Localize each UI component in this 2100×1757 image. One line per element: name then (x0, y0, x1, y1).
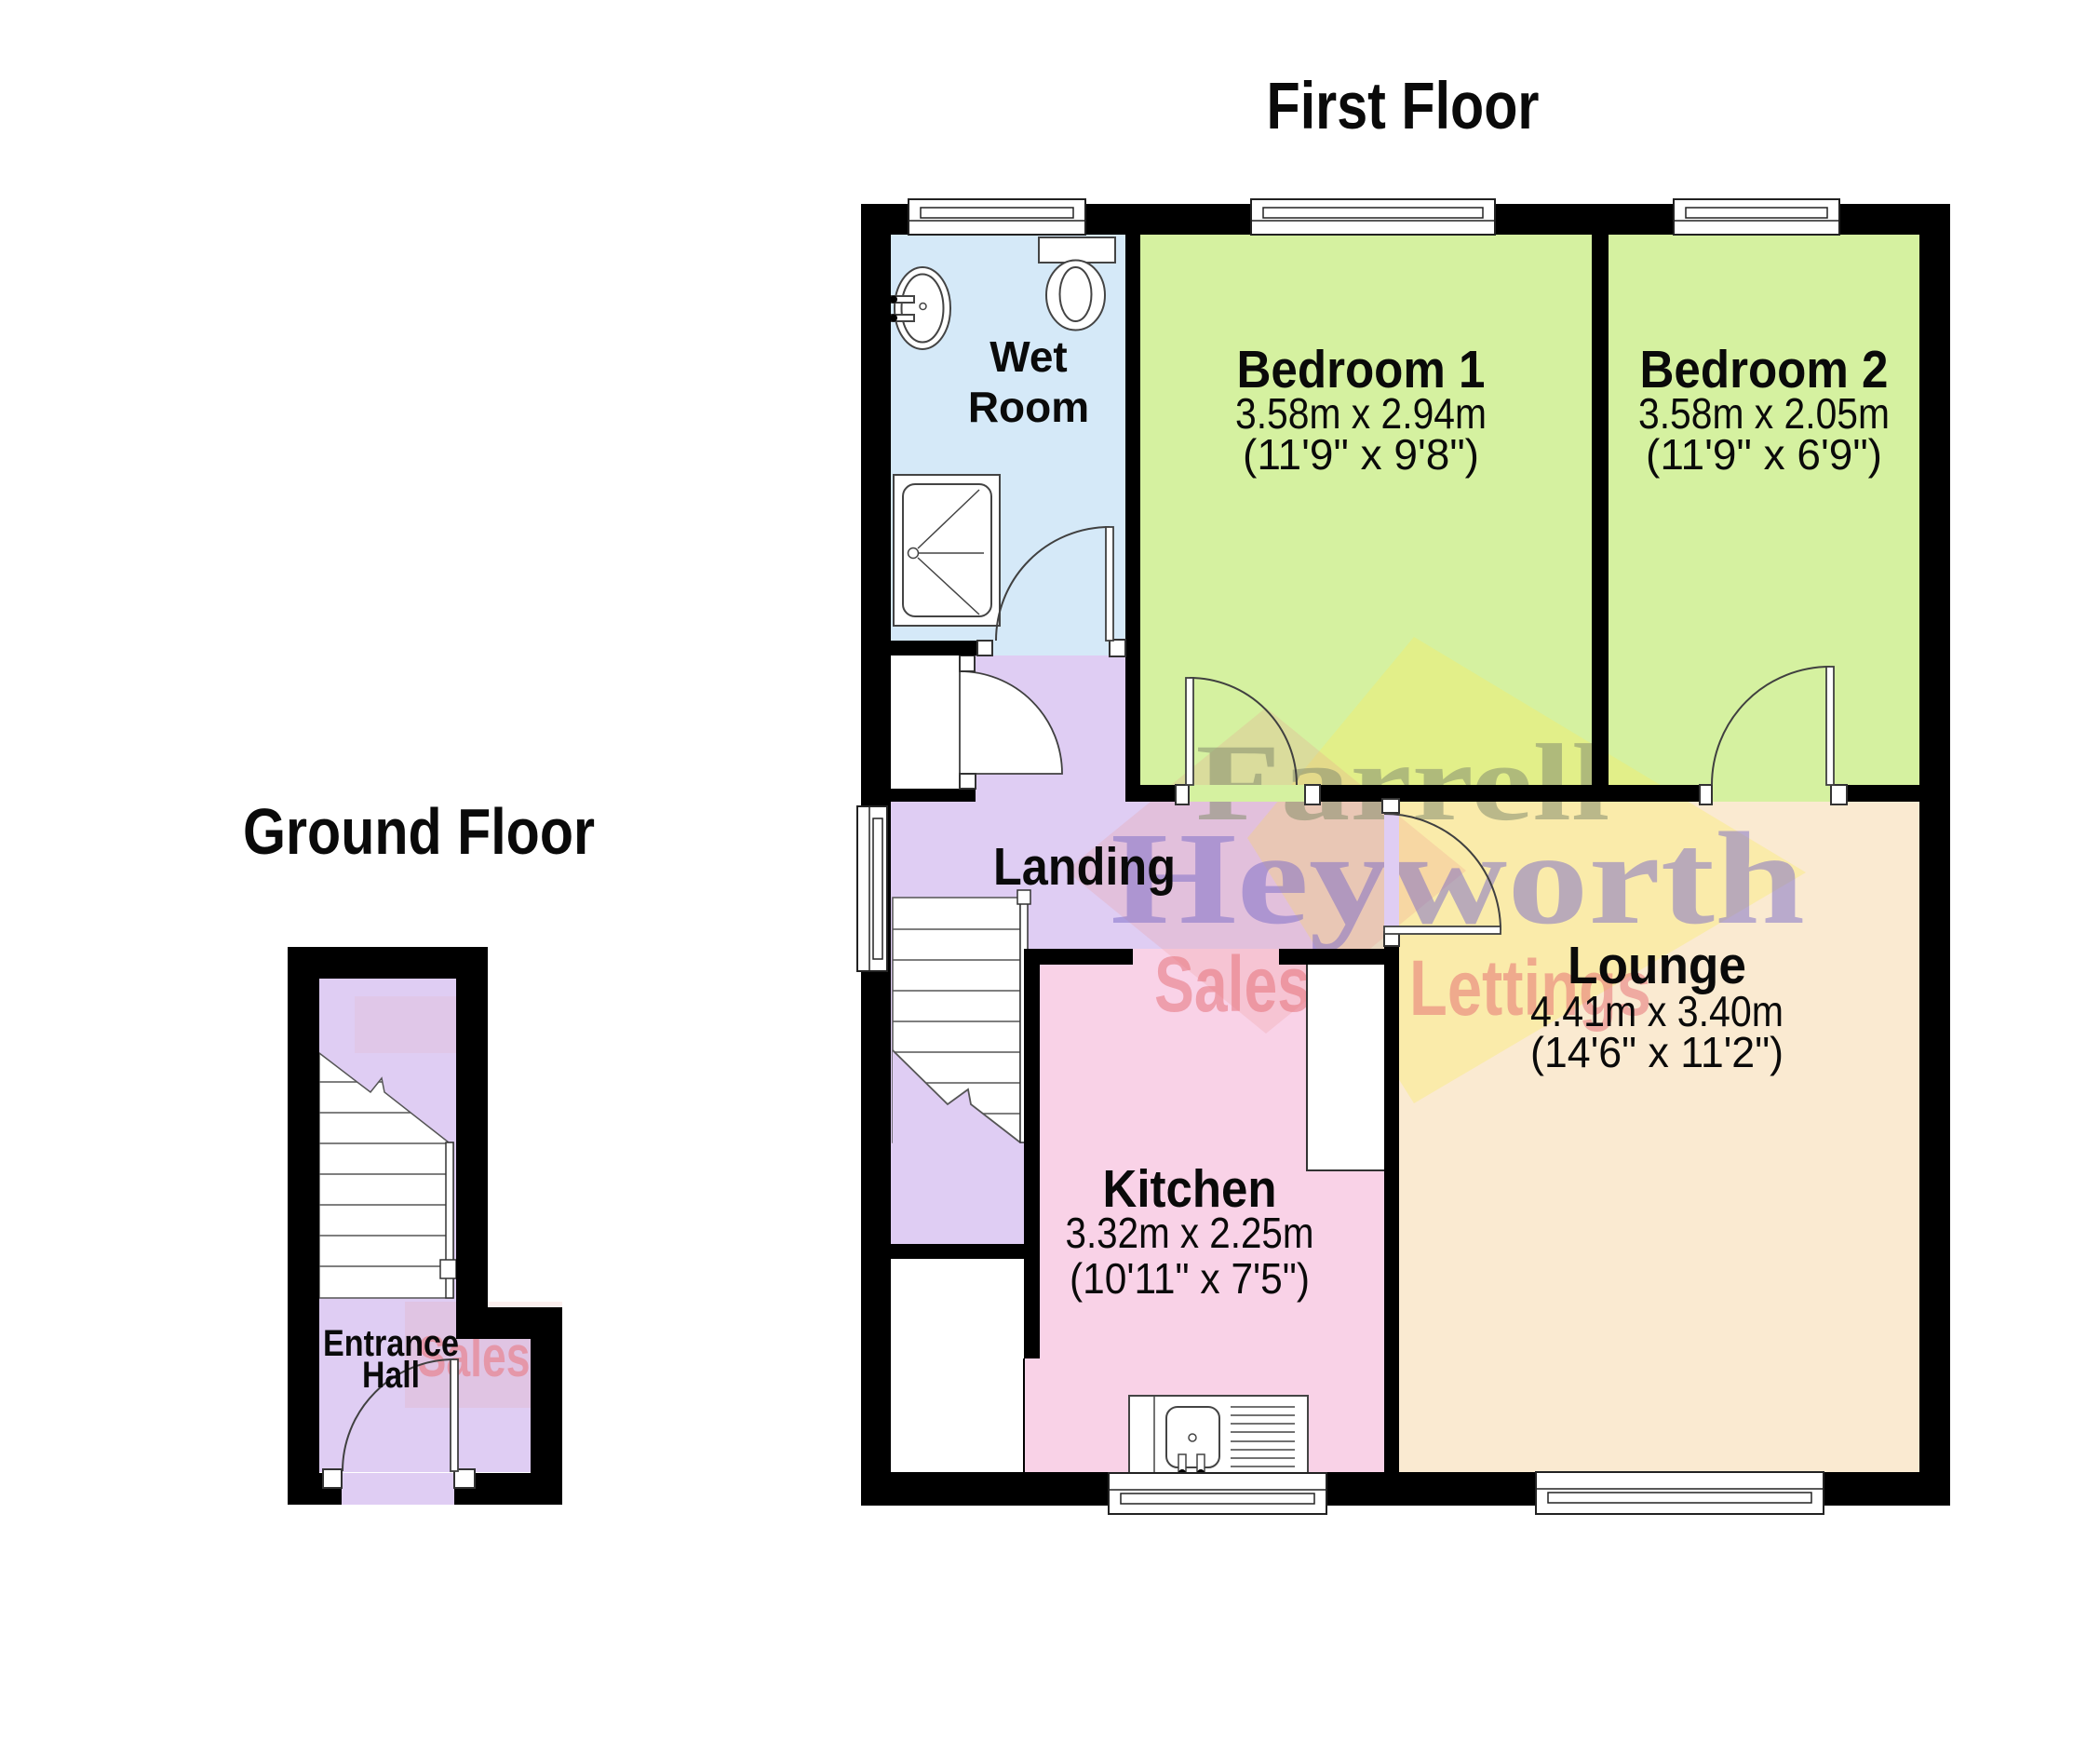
svg-text:First Floor: First Floor (1267, 70, 1540, 143)
svg-text:(14'6" x 11'2"): (14'6" x 11'2") (1530, 1028, 1784, 1076)
svg-text:(11'9" x 9'8"): (11'9" x 9'8") (1243, 430, 1479, 479)
svg-text:Room: Room (968, 383, 1089, 431)
svg-text:(11'9" x 6'9"): (11'9" x 6'9") (1646, 430, 1882, 479)
svg-text:Wet: Wet (989, 332, 1068, 381)
svg-text:(10'11" x 7'5"): (10'11" x 7'5") (1070, 1254, 1310, 1303)
svg-text:Landing: Landing (993, 837, 1176, 897)
svg-text:3.32m x 2.25m: 3.32m x 2.25m (1066, 1209, 1314, 1257)
svg-text:Hall: Hall (362, 1355, 420, 1396)
svg-text:Ground Floor: Ground Floor (243, 795, 595, 868)
